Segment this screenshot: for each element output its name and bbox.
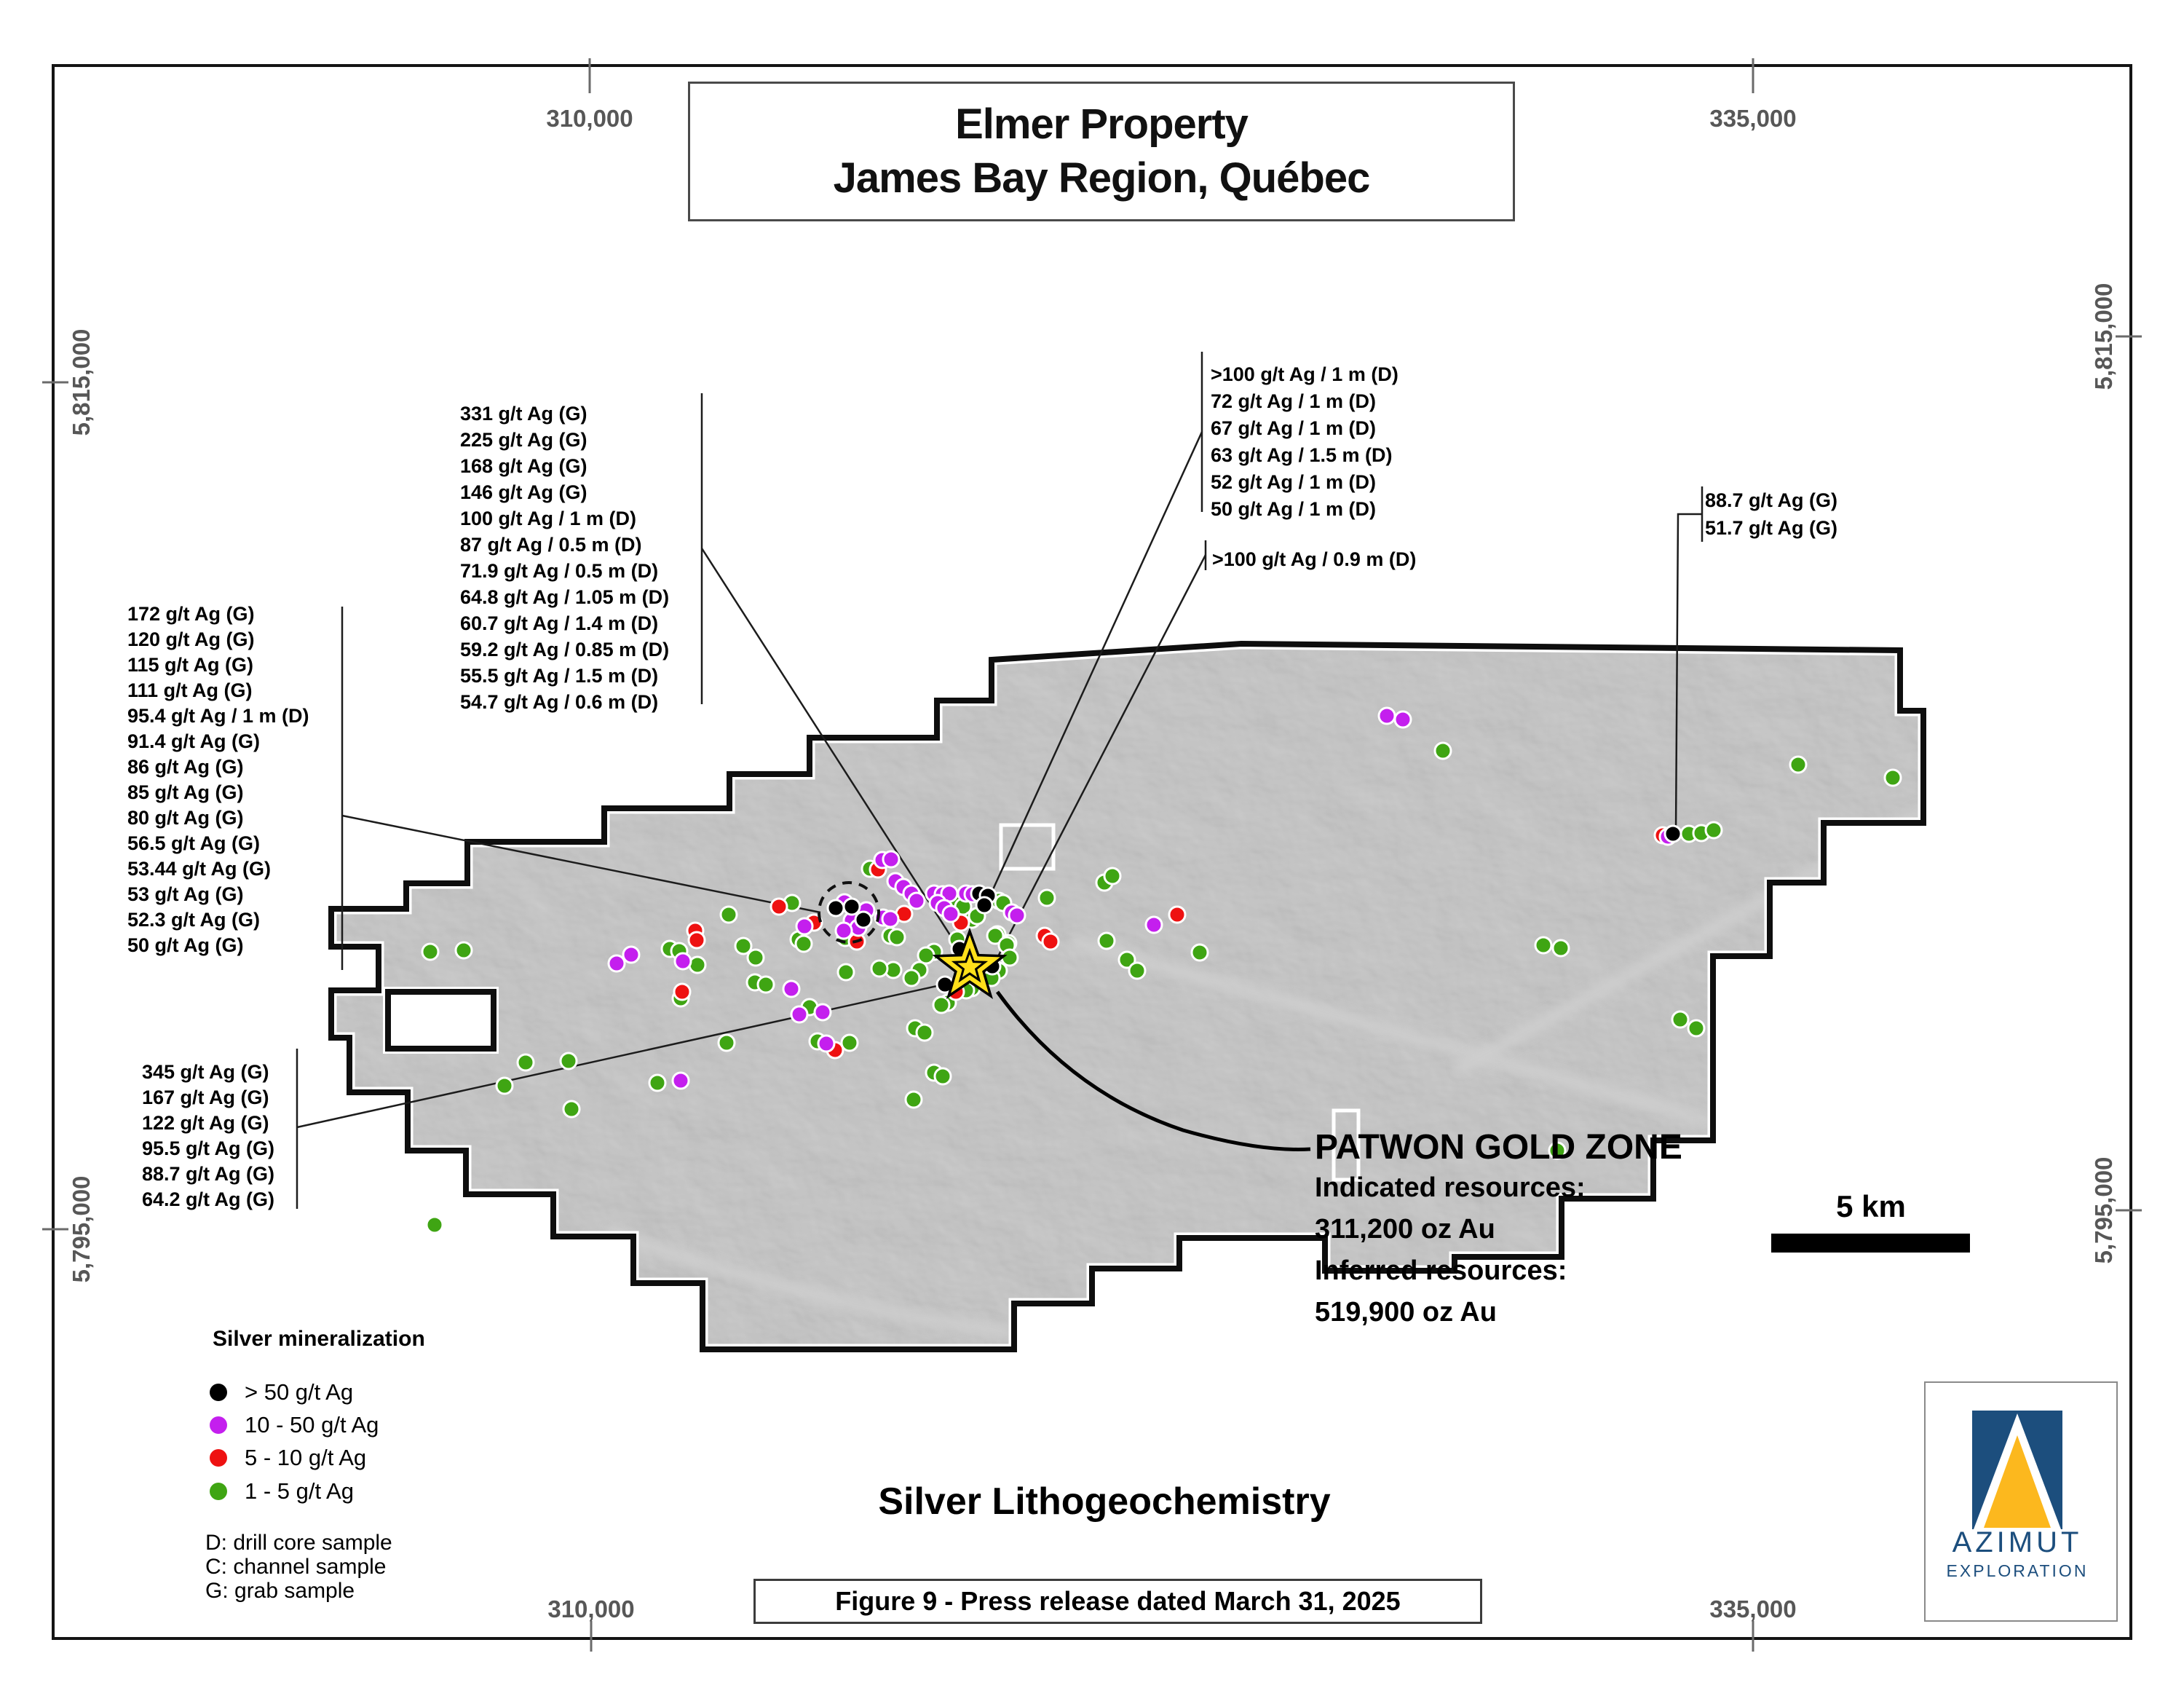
- sample-dot-g: [842, 1035, 858, 1051]
- sample-dot-g: [906, 1092, 922, 1108]
- patwon-resource-line: Indicated resources:: [1315, 1167, 1682, 1209]
- sample-code-line: D: drill core sample: [205, 1531, 392, 1555]
- sample-dot-m: [1379, 708, 1395, 724]
- patwon-gold-zone-block: PATWON GOLD ZONE Indicated resources:311…: [1315, 1127, 1682, 1333]
- sample-dot-m: [783, 981, 799, 997]
- coordinate-label: 5,795,000: [2090, 1157, 2118, 1264]
- annotation-south-grab-samples: 345 g/t Ag (G)167 g/t Ag (G)122 g/t Ag (…: [142, 1060, 274, 1212]
- sample-dot-g: [719, 1035, 735, 1051]
- annotation-line: 88.7 g/t Ag (G): [142, 1162, 274, 1187]
- legend-dot-icon: [210, 1384, 227, 1401]
- sample-dot-g: [748, 950, 764, 966]
- sample-dot-r: [1169, 907, 1185, 923]
- annotation-line: 168 g/t Ag (G): [460, 453, 669, 479]
- sample-dot-b: [828, 900, 844, 916]
- annotation-line: 95.5 g/t Ag (G): [142, 1136, 274, 1162]
- coordinate-label: 335,000: [1709, 1596, 1796, 1623]
- title-box: Elmer Property James Bay Region, Québec: [688, 82, 1515, 221]
- sample-dot-m: [818, 1036, 834, 1052]
- annotation-drill-intercepts: >100 g/t Ag / 1 m (D)72 g/t Ag / 1 m (D)…: [1211, 361, 1398, 523]
- coordinate-label: 310,000: [546, 105, 633, 133]
- sample-dot-g: [422, 944, 438, 960]
- sample-dot-g: [563, 1101, 579, 1117]
- sample-dot-g: [1002, 950, 1018, 966]
- legend-item-label: 1 - 5 g/t Ag: [245, 1478, 354, 1504]
- sample-dot-g: [889, 929, 905, 945]
- sample-dot-g: [496, 1078, 513, 1094]
- annotation-line: 91.4 g/t Ag (G): [127, 729, 309, 754]
- sample-dot-g: [796, 936, 812, 952]
- sample-dot-b: [1665, 826, 1681, 842]
- sample-dot-m: [1395, 711, 1411, 727]
- annotation-line: 64.2 g/t Ag (G): [142, 1187, 274, 1212]
- sample-dot-m: [909, 893, 925, 909]
- sample-dot-g: [649, 1075, 665, 1091]
- patwon-resources: Indicated resources:311,200 oz AuInferre…: [1315, 1167, 1682, 1333]
- annotation-line: 71.9 g/t Ag / 0.5 m (D): [460, 558, 669, 584]
- annotation-line: 55.5 g/t Ag / 1.5 m (D): [460, 663, 669, 689]
- legend-dot-icon: [210, 1483, 227, 1500]
- sample-dot-g: [1535, 937, 1551, 953]
- annotation-line: 64.8 g/t Ag / 1.05 m (D): [460, 584, 669, 610]
- sample-dot-g: [1099, 933, 1115, 949]
- patwon-title: PATWON GOLD ZONE: [1315, 1127, 1682, 1167]
- sample-dot-m: [675, 953, 691, 969]
- sample-dot-g: [838, 964, 854, 980]
- annotation-line: 172 g/t Ag (G): [127, 602, 309, 627]
- legend-item-label: > 50 g/t Ag: [245, 1379, 353, 1405]
- sample-dot-g: [518, 1054, 534, 1070]
- legend-heading: Silver mineralization: [213, 1327, 425, 1352]
- sample-dot-g: [456, 942, 472, 958]
- sample-dot-m: [623, 947, 639, 963]
- legend-dot-icon: [210, 1416, 227, 1434]
- annotation-line: 122 g/t Ag (G): [142, 1111, 274, 1136]
- figure-caption: Figure 9 - Press release dated March 31,…: [753, 1579, 1482, 1624]
- coordinate-label: 310,000: [547, 1596, 634, 1623]
- sample-dot-g: [1688, 1020, 1704, 1036]
- azimut-logo: AZIMUTEXPLORATION: [1924, 1381, 2118, 1622]
- patwon-resource-line: 519,900 oz Au: [1315, 1292, 1682, 1333]
- annotation-line: 225 g/t Ag (G): [460, 427, 669, 453]
- annotation-line: 86 g/t Ag (G): [127, 754, 309, 780]
- scalebar: [1771, 1234, 1970, 1253]
- legend-item: 5 - 10 g/t Ag: [210, 1445, 366, 1471]
- sample-dot-m: [836, 923, 852, 939]
- annotation-line: 67 g/t Ag / 1 m (D): [1211, 415, 1398, 442]
- annotation-line: >100 g/t Ag / 0.9 m (D): [1212, 546, 1416, 573]
- annotation-line: 60.7 g/t Ag / 1.4 m (D): [460, 610, 669, 636]
- sample-dot-b: [976, 897, 992, 913]
- sample-dot-m: [943, 906, 959, 922]
- annotation-line: 146 g/t Ag (G): [460, 479, 669, 505]
- sample-dot-g: [1039, 890, 1055, 906]
- sample-dot-g: [1104, 868, 1120, 884]
- scalebar-label: 5 km: [1836, 1189, 1906, 1224]
- logo-wordmark-sub: EXPLORATION: [1947, 1561, 2089, 1580]
- azimut-logo-icon: AZIMUTEXPLORATION: [1926, 1383, 2116, 1620]
- sample-dot-g: [903, 970, 919, 986]
- coordinate-label: 5,815,000: [2090, 283, 2118, 390]
- sample-dot-g: [721, 907, 737, 923]
- annotation-line: 51.7 g/t Ag (G): [1705, 514, 1837, 542]
- annotation-drill-intercept-09m: >100 g/t Ag / 0.9 m (D): [1212, 546, 1416, 573]
- annotation-line: 87 g/t Ag / 0.5 m (D): [460, 532, 669, 558]
- annotation-line: 85 g/t Ag (G): [127, 780, 309, 805]
- sample-dot-g: [758, 977, 774, 993]
- sample-dot-m: [1146, 917, 1162, 933]
- annotation-line: 50 g/t Ag / 1 m (D): [1211, 496, 1398, 523]
- annotation-line: 115 g/t Ag (G): [127, 652, 309, 678]
- sample-dot-g: [933, 997, 949, 1013]
- sample-dot-m: [1009, 907, 1025, 923]
- annotation-line: >100 g/t Ag / 1 m (D): [1211, 361, 1398, 388]
- sample-dot-g: [1129, 963, 1145, 979]
- annotation-line: 56.5 g/t Ag (G): [127, 831, 309, 856]
- sample-dot-b: [844, 899, 860, 915]
- sample-dot-g: [1435, 743, 1451, 759]
- sample-dot-g: [1672, 1011, 1688, 1028]
- annotation-central-samples: 331 g/t Ag (G)225 g/t Ag (G)168 g/t Ag (…: [460, 401, 669, 715]
- sample-dot-g: [935, 1068, 951, 1084]
- sample-dot-g: [1706, 822, 1722, 838]
- sample-dot-r: [1042, 934, 1059, 950]
- figure-subtitle: Silver Lithogeochemistry: [878, 1480, 1330, 1523]
- legend-dot-icon: [210, 1449, 227, 1467]
- annotation-line: 54.7 g/t Ag / 0.6 m (D): [460, 689, 669, 715]
- sample-dot-g: [561, 1053, 577, 1069]
- sample-dot-m: [673, 1073, 689, 1089]
- annotation-line: 100 g/t Ag / 1 m (D): [460, 505, 669, 532]
- annotation-line: 52.3 g/t Ag (G): [127, 907, 309, 933]
- sample-dot-m: [796, 918, 812, 934]
- annotation-line: 80 g/t Ag (G): [127, 805, 309, 831]
- legend-item: > 50 g/t Ag: [210, 1379, 353, 1405]
- annotation-line: 53 g/t Ag (G): [127, 882, 309, 907]
- annotation-line: 120 g/t Ag (G): [127, 627, 309, 652]
- legend-item-label: 5 - 10 g/t Ag: [245, 1445, 366, 1471]
- sample-dot-m: [609, 955, 625, 971]
- sample-dot-g: [1192, 944, 1208, 961]
- sample-dot-g: [1553, 940, 1569, 956]
- annotation-line: 167 g/t Ag (G): [142, 1085, 274, 1111]
- annotation-line: 88.7 g/t Ag (G): [1705, 486, 1837, 514]
- annotation-line: 331 g/t Ag (G): [460, 401, 669, 427]
- patwon-resource-line: 311,200 oz Au: [1315, 1209, 1682, 1250]
- annotation-line: 53.44 g/t Ag (G): [127, 856, 309, 882]
- sample-dot-b: [855, 912, 871, 928]
- sample-dot-m: [883, 851, 899, 867]
- logo-wordmark: AZIMUT: [1952, 1526, 2083, 1558]
- legend-item: 1 - 5 g/t Ag: [210, 1478, 354, 1504]
- sample-code-line: G: grab sample: [205, 1579, 355, 1604]
- sample-dot-r: [689, 932, 705, 948]
- claim-notch: [388, 992, 494, 1049]
- sample-dot-m: [791, 1006, 807, 1022]
- annotation-line: 72 g/t Ag / 1 m (D): [1211, 388, 1398, 415]
- title-line-1: Elmer Property: [955, 98, 1248, 151]
- sample-dot-r: [771, 899, 787, 915]
- coordinate-label: 5,815,000: [68, 329, 95, 436]
- sample-dot-g: [1885, 770, 1901, 786]
- annotation-line: 63 g/t Ag / 1.5 m (D): [1211, 442, 1398, 469]
- annotation-line: 52 g/t Ag / 1 m (D): [1211, 469, 1398, 496]
- sample-dot-m: [815, 1004, 831, 1020]
- sample-dot-g: [689, 957, 705, 973]
- coordinate-label: 5,795,000: [68, 1176, 95, 1283]
- sample-dot-g: [917, 1025, 933, 1041]
- sample-dot-r: [674, 984, 690, 1000]
- annotation-line: 59.2 g/t Ag / 0.85 m (D): [460, 636, 669, 663]
- annotation-west-grab-samples: 172 g/t Ag (G)120 g/t Ag (G)115 g/t Ag (…: [127, 602, 309, 958]
- figure-page: Elmer Property James Bay Region, Québec …: [0, 0, 2184, 1688]
- legend-item: 10 - 50 g/t Ag: [210, 1412, 379, 1438]
- sample-dot-m: [882, 911, 898, 927]
- legend-item-label: 10 - 50 g/t Ag: [245, 1412, 379, 1438]
- annotation-east-grab-samples: 88.7 g/t Ag (G)51.7 g/t Ag (G): [1705, 486, 1837, 542]
- sample-dot-g: [427, 1217, 443, 1233]
- title-line-2: James Bay Region, Québec: [834, 151, 1370, 205]
- annotation-line: 111 g/t Ag (G): [127, 678, 309, 703]
- annotation-line: 50 g/t Ag (G): [127, 933, 309, 958]
- annotation-line: 345 g/t Ag (G): [142, 1060, 274, 1085]
- annotation-line: 95.4 g/t Ag / 1 m (D): [127, 703, 309, 729]
- sample-dot-g: [871, 961, 887, 977]
- patwon-resource-line: Inferred resources:: [1315, 1250, 1682, 1292]
- sample-dot-g: [1790, 757, 1806, 773]
- sample-code-line: C: channel sample: [205, 1555, 386, 1579]
- coordinate-label: 335,000: [1709, 105, 1796, 133]
